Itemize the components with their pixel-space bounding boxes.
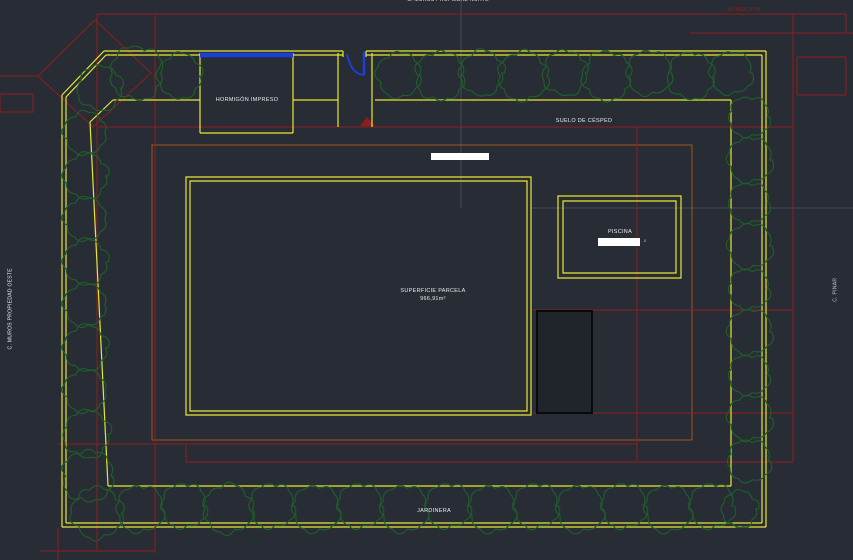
tree-shrub[interactable] [62,196,106,241]
site-plan-drawing [0,0,853,560]
street-label-top: C. MUROS PROPIEDAD NORTE [378,0,518,5]
tree-shrub[interactable] [728,355,770,396]
parcel-area-value: 966,91m² [373,296,493,304]
pool-area-suffix: ² [641,239,649,247]
parcel-area-label: SUPERFICIE PARCELA 966,91m² [373,288,493,303]
tree-shrub[interactable] [581,51,632,102]
tree-shrub[interactable] [728,97,770,138]
pool-label: PISCINA [590,229,650,237]
tree-shrub[interactable] [667,52,715,99]
tree-shrub[interactable] [156,52,203,100]
tree-shrub[interactable] [626,51,673,97]
door-swing-arc[interactable] [347,54,364,75]
terrace-outline[interactable] [537,311,592,413]
tree-shrub[interactable] [709,52,754,96]
dimension-highlight-bar [431,153,489,160]
tree-shrub[interactable] [728,269,770,310]
tree-shrub[interactable] [542,50,588,96]
concrete-area-label: HORMIGÓN IMPRESO [197,97,297,105]
grass-area-label: SUELO DE CÉSPED [534,118,634,126]
tree-shrub[interactable] [62,110,106,155]
tree-shrub[interactable] [728,183,770,224]
tree-shrub[interactable] [62,238,109,285]
tree-shrub[interactable] [415,50,465,101]
pool-area-highlight-bar [598,238,640,246]
street-label-left: C. MUROS PROPIEDAD OESTE [7,266,15,352]
parcel-area-title: SUPERFICIE PARCELA [373,288,493,296]
setback-note-label: ALINEACIÓN [714,7,774,15]
tree-shrub[interactable] [721,489,759,527]
entrance-partitions[interactable] [200,53,372,133]
street-label-right: C. PINAR [832,260,840,320]
planter-label: JARDINERA [394,508,474,516]
red-marker-triangle [360,117,375,126]
tree-shrub[interactable] [62,368,106,413]
cad-viewport[interactable]: C. MUROS PROPIEDAD NORTE C. MUROS PROPIE… [0,0,853,560]
tree-shrub[interactable] [375,51,422,98]
tree-shrub[interactable] [62,152,109,199]
